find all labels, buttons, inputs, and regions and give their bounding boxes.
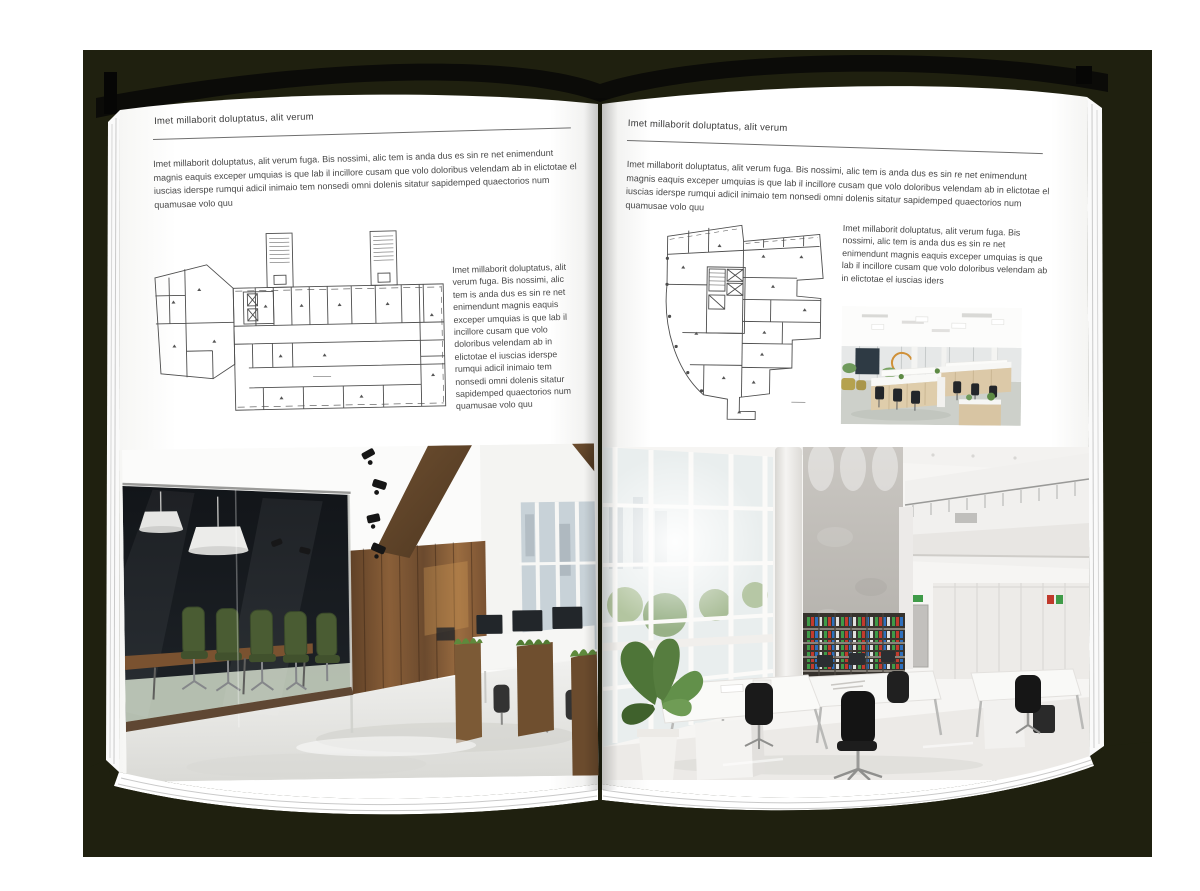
right-page-header: Imet millaborit doluptatus, alit verum bbox=[628, 118, 1048, 142]
wall-cabinets bbox=[933, 583, 1089, 679]
brochure-mockup: Imet millaborit doluptatus, alit verum I… bbox=[0, 0, 1200, 891]
left-intro-text: Imet millaborit doluptatus, alit verum f… bbox=[153, 148, 577, 210]
left-page-side-text: Imet millaborit doluptatus, alit verum f… bbox=[452, 261, 574, 413]
right-header-text: Imet millaborit doluptatus, alit verum bbox=[628, 118, 788, 134]
right-header-rule bbox=[627, 140, 1043, 154]
column bbox=[775, 447, 802, 709]
exit-sign-small bbox=[1056, 595, 1063, 604]
right-floor-plan bbox=[641, 214, 834, 422]
lounge-chair bbox=[841, 378, 855, 390]
left-page-intro: Imet millaborit doluptatus, alit verum f… bbox=[153, 146, 580, 212]
left-page-photo bbox=[122, 443, 599, 782]
glass-meeting-room bbox=[122, 481, 353, 736]
left-page: Imet millaborit doluptatus, alit verum I… bbox=[0, 0, 600, 891]
right-page-photo-small bbox=[841, 306, 1022, 426]
left-page-header: Imet millaborit doluptatus, alit verum bbox=[154, 104, 574, 127]
right-page-side-text: Imet millaborit doluptatus, alit verum f… bbox=[841, 222, 1049, 289]
left-floor-plan bbox=[150, 226, 452, 424]
left-header-text: Imet millaborit doluptatus, alit verum bbox=[154, 112, 314, 127]
bookshelf-binders bbox=[803, 613, 905, 681]
left-header-rule bbox=[153, 127, 571, 140]
right-intro-text: Imet millaborit doluptatus, alit verum f… bbox=[625, 159, 1049, 212]
right-page-photo-large bbox=[603, 447, 1089, 780]
media-wall bbox=[855, 348, 879, 374]
right-page: Imet millaborit doluptatus, alit verum I… bbox=[600, 0, 1200, 891]
left-side-text: Imet millaborit doluptatus, alit verum f… bbox=[452, 262, 571, 412]
fire-sign bbox=[1047, 595, 1054, 604]
right-side-text: Imet millaborit doluptatus, alit verum f… bbox=[841, 223, 1047, 285]
